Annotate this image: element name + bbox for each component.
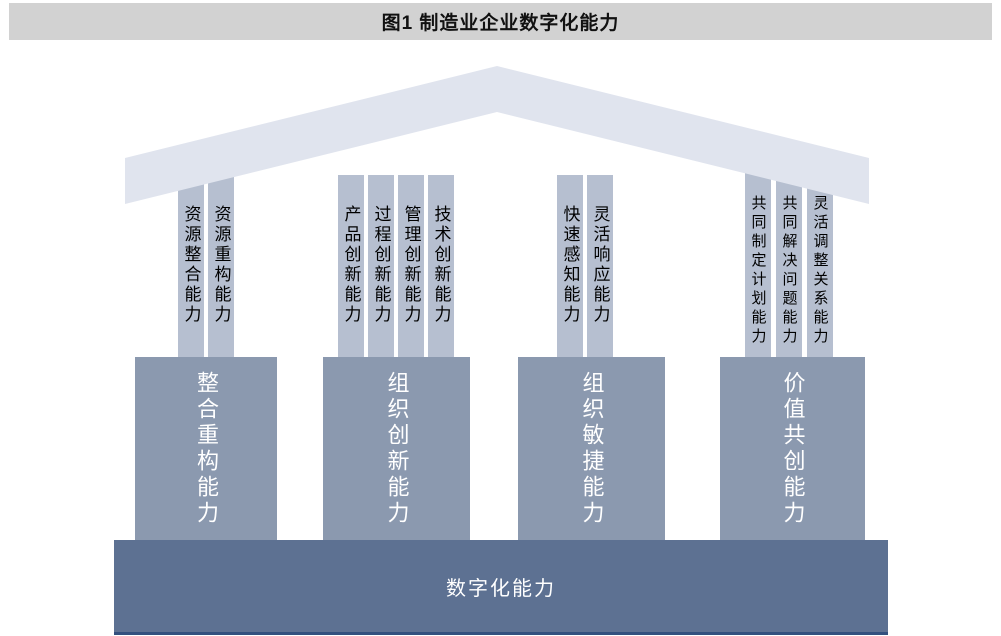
roof-shape <box>125 66 869 204</box>
figure-canvas: 图1 制造业企业数字化能力 资源整合能力 资源重构能力 产品创新能力 过程创新能… <box>0 0 1001 636</box>
base-label: 数字化能力 <box>446 572 556 601</box>
column-organizational-agility: 组织敏捷能力 <box>518 357 665 540</box>
column-integration-reconfiguration: 整合重构能力 <box>135 357 277 540</box>
column-value-cocreation: 价值共创能力 <box>720 357 865 540</box>
column-organizational-innovation: 组织创新能力 <box>323 357 470 540</box>
base-bar: 数字化能力 <box>114 540 888 635</box>
